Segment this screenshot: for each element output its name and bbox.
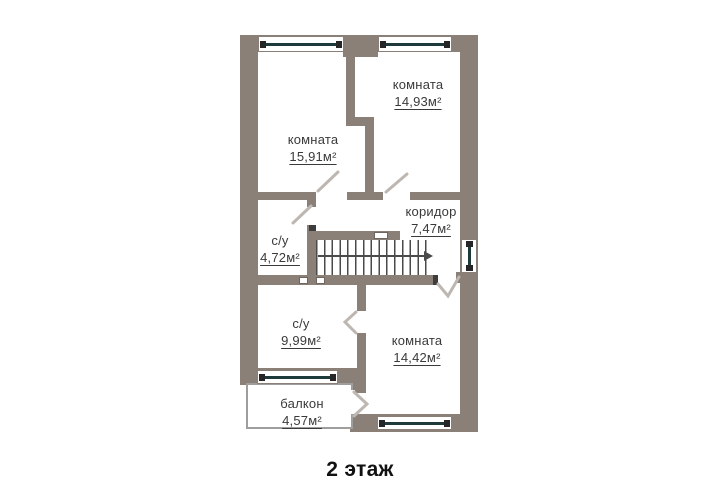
room-area: 4,72м² <box>260 249 300 266</box>
wall-corridor-stub <box>307 200 316 207</box>
room-area: 9,99м² <box>281 332 321 349</box>
window-cap <box>466 265 473 271</box>
room-label-bottom-right: комната 14,42м² <box>392 332 443 366</box>
room-label-bathroom-large: с/у 9,99м² <box>281 315 321 349</box>
window-cap <box>336 41 342 48</box>
window-glass <box>261 376 334 379</box>
room-name: комната <box>392 333 443 348</box>
room-label-bathroom-small: с/у 4,72м² <box>260 232 300 266</box>
room-area: 14,42м² <box>393 349 440 366</box>
window-room-top-right <box>378 36 452 52</box>
window-glass <box>262 43 340 46</box>
window-cap <box>379 420 385 427</box>
door-room-top-left <box>318 172 338 191</box>
window-glass <box>382 43 448 46</box>
window-cap <box>444 41 450 48</box>
window-cap <box>330 374 336 381</box>
room-label-top-left: комната 15,91м² <box>288 131 339 165</box>
door-balcony <box>354 392 367 416</box>
window-cap <box>444 420 450 427</box>
wall-cap-mid <box>433 275 438 285</box>
wall-window-jamb-right <box>456 272 462 283</box>
door-bathroom-small <box>293 206 311 223</box>
room-area: 14,93м² <box>394 93 441 110</box>
vent-shaft-icon <box>374 232 388 239</box>
wall-exterior-right <box>460 35 478 432</box>
window-cap <box>259 374 265 381</box>
wall-corridor-top-right <box>410 192 462 200</box>
stairs-direction-arrow-icon <box>318 255 424 257</box>
wall-divider-top-rooms-upper <box>346 52 355 122</box>
floor-caption: 2 этаж <box>326 458 394 482</box>
room-label-top-right: комната 14,93м² <box>393 76 444 110</box>
window-room-top-left <box>258 36 344 52</box>
wall-mid-horizontal <box>250 275 438 285</box>
room-label-corridor: коридор 7,47м² <box>405 203 456 237</box>
wall-divider-top-rooms-lower <box>365 117 374 192</box>
room-name: с/у <box>292 316 309 331</box>
wall-cap-stairwell <box>309 225 316 231</box>
floor-plan: комната 15,91м² комната 14,93м² коридор … <box>0 0 717 502</box>
window-glass <box>381 422 448 425</box>
vent-shaft-icon <box>299 277 308 284</box>
wall-bath-divider-upper <box>357 285 366 311</box>
room-name: балкон <box>280 396 323 411</box>
room-name: комната <box>288 132 339 147</box>
staircase <box>316 240 433 275</box>
window-cap <box>466 241 473 247</box>
wall-corridor-top-mid <box>347 192 383 200</box>
window-bathroom-balcony <box>257 370 338 384</box>
room-name: коридор <box>405 204 456 219</box>
window-room-bottom-right <box>377 416 452 430</box>
wall-corridor-top-left <box>250 192 316 200</box>
door-bathroom-large <box>345 312 356 333</box>
vent-shaft-icon <box>316 277 325 284</box>
room-area: 4,57м² <box>282 412 322 429</box>
balcony-door-gap <box>350 390 355 414</box>
room-area: 7,47м² <box>411 220 451 237</box>
stairs-arrow-head-icon <box>424 251 433 261</box>
window-corridor-right <box>461 239 477 273</box>
window-cap <box>380 41 386 48</box>
room-name: с/у <box>271 233 288 248</box>
wall-exterior-left <box>240 35 258 385</box>
window-cap <box>260 41 266 48</box>
room-name: комната <box>393 77 444 92</box>
room-area: 15,91м² <box>289 148 336 165</box>
door-room-top-right <box>386 174 407 192</box>
wall-stairwell-left <box>307 225 316 277</box>
room-label-balcony: балкон 4,57м² <box>280 395 323 429</box>
